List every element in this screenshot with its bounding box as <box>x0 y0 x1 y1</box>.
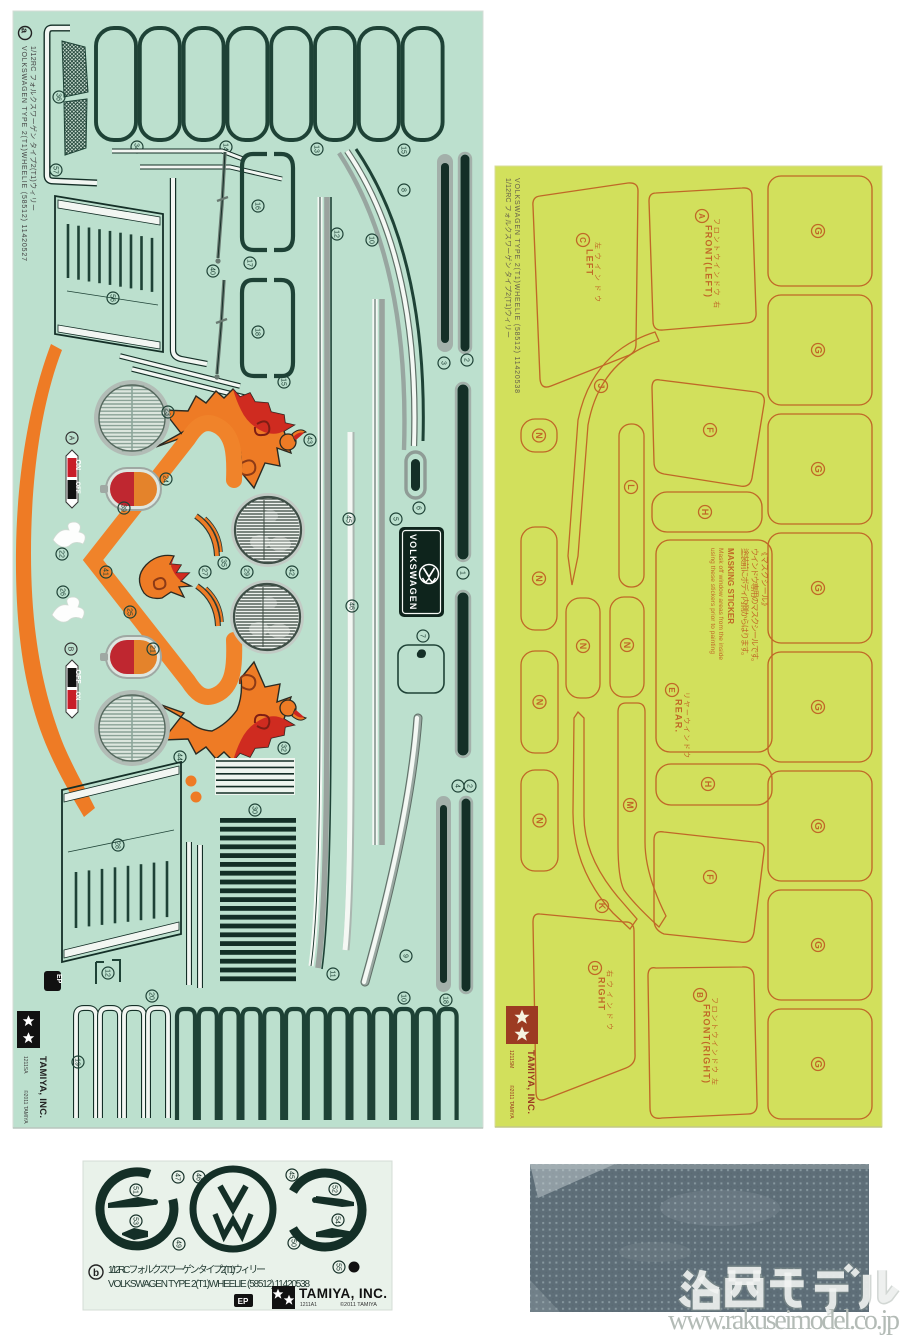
svg-text:N: N <box>622 642 632 649</box>
svg-text:29: 29 <box>243 568 250 576</box>
svg-text:M: M <box>625 801 635 809</box>
svg-text:G: G <box>812 941 823 949</box>
svg-text:18: 18 <box>442 996 449 1004</box>
svg-text:12: 12 <box>104 969 111 977</box>
svg-text:A: A <box>697 213 706 219</box>
svg-text:©2011 TAMIYA: ©2011 TAMIYA <box>340 1301 377 1308</box>
svg-text:35: 35 <box>220 559 227 567</box>
svg-text:using these stickers prior to: using these stickers prior to painting <box>709 548 716 654</box>
svg-text:13: 13 <box>313 145 320 153</box>
svg-text:www.rakuseimodel.co.jp: www.rakuseimodel.co.jp <box>668 1305 900 1336</box>
svg-text:5: 5 <box>392 517 399 521</box>
svg-text:EP: EP <box>55 974 62 984</box>
svg-text:G: G <box>812 346 823 354</box>
svg-text:47: 47 <box>174 1173 181 1181</box>
svg-text:B: B <box>695 992 704 998</box>
svg-text:20: 20 <box>148 992 155 1000</box>
svg-text:LEFT: LEFT <box>585 249 595 276</box>
svg-text:L: L <box>626 484 636 490</box>
svg-text:49: 49 <box>175 1240 182 1248</box>
svg-text:2: 2 <box>463 358 470 362</box>
svg-text:8: 8 <box>400 188 407 192</box>
svg-text:©2011 TAMIYA: ©2011 TAMIYA <box>22 1090 29 1124</box>
svg-text:50: 50 <box>290 1239 297 1247</box>
svg-text:51: 51 <box>132 1186 139 1194</box>
svg-text:RIGHT: RIGHT <box>597 977 607 1011</box>
svg-text:11: 11 <box>329 970 336 977</box>
svg-text:Mask off window areas from the: Mask off window areas from the inside <box>717 548 724 660</box>
svg-text:46: 46 <box>195 1173 202 1181</box>
svg-text:EP: EP <box>238 1297 249 1306</box>
svg-text:27: 27 <box>201 568 208 576</box>
svg-text:G: G <box>812 1060 823 1068</box>
svg-text:6: 6 <box>415 506 422 510</box>
svg-text:44: 44 <box>176 753 183 761</box>
svg-text:G: G <box>812 822 823 830</box>
svg-text:E: E <box>667 687 676 693</box>
svg-text:1: 1 <box>459 571 466 575</box>
svg-text:ウインドウ専用のマスクシールです。: ウインドウ専用のマスクシールです。 <box>750 548 760 666</box>
svg-text:25: 25 <box>126 608 133 616</box>
svg-text:OFF: OFF <box>74 482 80 494</box>
svg-text:24: 24 <box>162 475 169 483</box>
svg-text:4: 4 <box>454 784 461 788</box>
svg-text:OFF: OFF <box>74 670 81 685</box>
svg-text:K: K <box>597 903 607 910</box>
svg-text:9: 9 <box>402 954 409 958</box>
svg-text:36: 36 <box>55 93 62 101</box>
svg-text:17: 17 <box>246 259 253 267</box>
svg-text:55: 55 <box>335 1263 342 1271</box>
svg-text:57: 57 <box>52 166 59 174</box>
svg-text:C: C <box>578 237 587 243</box>
svg-text:46: 46 <box>348 602 355 610</box>
svg-text:《マスクシール》: 《マスクシール》 <box>760 548 769 610</box>
svg-text:G: G <box>812 584 823 592</box>
svg-text:52: 52 <box>331 1185 338 1193</box>
svg-text:VOLKSWAGEN TYPE 2(T1)WHEELIE (: VOLKSWAGEN TYPE 2(T1)WHEELIE (58512) 114… <box>20 46 27 261</box>
svg-text:28: 28 <box>114 841 121 849</box>
svg-text:D: D <box>590 965 599 971</box>
svg-text:26: 26 <box>59 588 66 596</box>
svg-text:VOLKSWAGEN: VOLKSWAGEN <box>408 534 418 610</box>
svg-text:REAR.: REAR. <box>674 699 684 732</box>
svg-text:23: 23 <box>164 408 171 416</box>
svg-text:15: 15 <box>400 146 407 154</box>
svg-text:H: H <box>703 781 713 788</box>
svg-text:ON: ON <box>74 460 81 471</box>
svg-text:1/12RC フォルクスワーゲン タイプ2(T1)ウィリー: 1/12RC フォルクスワーゲン タイプ2(T1)ウィリー <box>29 46 38 211</box>
svg-text:N: N <box>534 575 544 582</box>
svg-text:1/12RC フォルクスワーゲン タイプ2(T1)ウィリー: 1/12RC フォルクスワーゲン タイプ2(T1)ウィリー <box>108 1264 266 1276</box>
svg-text:21: 21 <box>149 645 156 653</box>
svg-text:10: 10 <box>400 994 407 1002</box>
svg-text:40: 40 <box>209 267 216 275</box>
svg-text:©2011 TAMIYA: ©2011 TAMIYA <box>508 1085 515 1119</box>
svg-text:N: N <box>534 699 544 706</box>
svg-text:16: 16 <box>254 202 261 210</box>
svg-text:1211A1: 1211A1 <box>300 1302 317 1308</box>
svg-text:塗装前にボディ内側からはります。: 塗装前にボディ内側からはります。 <box>740 548 750 660</box>
svg-text:TAMIYA, INC.: TAMIYA, INC. <box>299 1286 387 1301</box>
svg-text:FRONT(RIGHT): FRONT(RIGHT) <box>702 1004 712 1083</box>
svg-text:ON: ON <box>74 692 80 701</box>
svg-text:G: G <box>812 465 823 473</box>
svg-text:54: 54 <box>334 1216 341 1224</box>
svg-text:TAMIYA, INC.: TAMIYA, INC. <box>37 1056 48 1118</box>
svg-text:J: J <box>596 383 606 388</box>
svg-text:リヤーウインドウ: リヤーウインドウ <box>683 692 691 758</box>
svg-text:VOLKSWAGEN TYPE 2(T1)WHEELIE (: VOLKSWAGEN TYPE 2(T1)WHEELIE (58512) 114… <box>513 178 520 393</box>
svg-text:F: F <box>705 874 715 880</box>
svg-text:G: G <box>812 227 823 235</box>
svg-text:45: 45 <box>345 515 352 523</box>
svg-text:45: 45 <box>288 1171 295 1179</box>
svg-text:N: N <box>534 432 544 439</box>
svg-text:1211SM: 1211SM <box>508 1050 514 1068</box>
svg-text:MASKING STICKER: MASKING STICKER <box>726 548 735 624</box>
svg-text:b: b <box>93 1268 99 1279</box>
svg-text:7: 7 <box>419 634 426 638</box>
svg-text:53: 53 <box>132 1217 139 1225</box>
svg-text:39: 39 <box>120 504 127 512</box>
svg-text:F: F <box>705 427 715 433</box>
svg-text:12: 12 <box>333 230 340 238</box>
svg-text:1/12RC フォルクスワーゲン タイプ2(T1)ウィリー: 1/12RC フォルクスワーゲン タイプ2(T1)ウィリー <box>504 178 513 338</box>
svg-text:TAMIYA, INC.: TAMIYA, INC. <box>525 1050 536 1114</box>
svg-text:56: 56 <box>109 294 116 302</box>
svg-text:19: 19 <box>74 1058 81 1066</box>
svg-text:フロントウインドウ 左: フロントウインドウ 左 <box>711 997 720 1085</box>
svg-text:22: 22 <box>58 550 65 558</box>
svg-text:3: 3 <box>440 361 447 365</box>
svg-text:42: 42 <box>288 568 295 576</box>
svg-text:43: 43 <box>306 436 313 444</box>
svg-text:30: 30 <box>251 806 258 814</box>
svg-text:H: H <box>700 509 710 516</box>
svg-text:32: 32 <box>280 744 287 752</box>
svg-text:N: N <box>578 643 588 650</box>
svg-text:フロントウインドウ 右: フロントウインドウ 右 <box>713 218 722 308</box>
svg-text:B: B <box>67 647 74 652</box>
svg-text:10: 10 <box>368 236 375 244</box>
svg-text:N: N <box>534 817 544 824</box>
svg-text:41: 41 <box>102 568 109 576</box>
svg-text:A: A <box>68 436 75 441</box>
svg-text:G: G <box>812 703 823 711</box>
svg-text:15: 15 <box>280 378 287 386</box>
svg-text:2: 2 <box>466 784 473 788</box>
svg-text:1211SA: 1211SA <box>22 1056 28 1074</box>
svg-text:18: 18 <box>254 328 261 336</box>
